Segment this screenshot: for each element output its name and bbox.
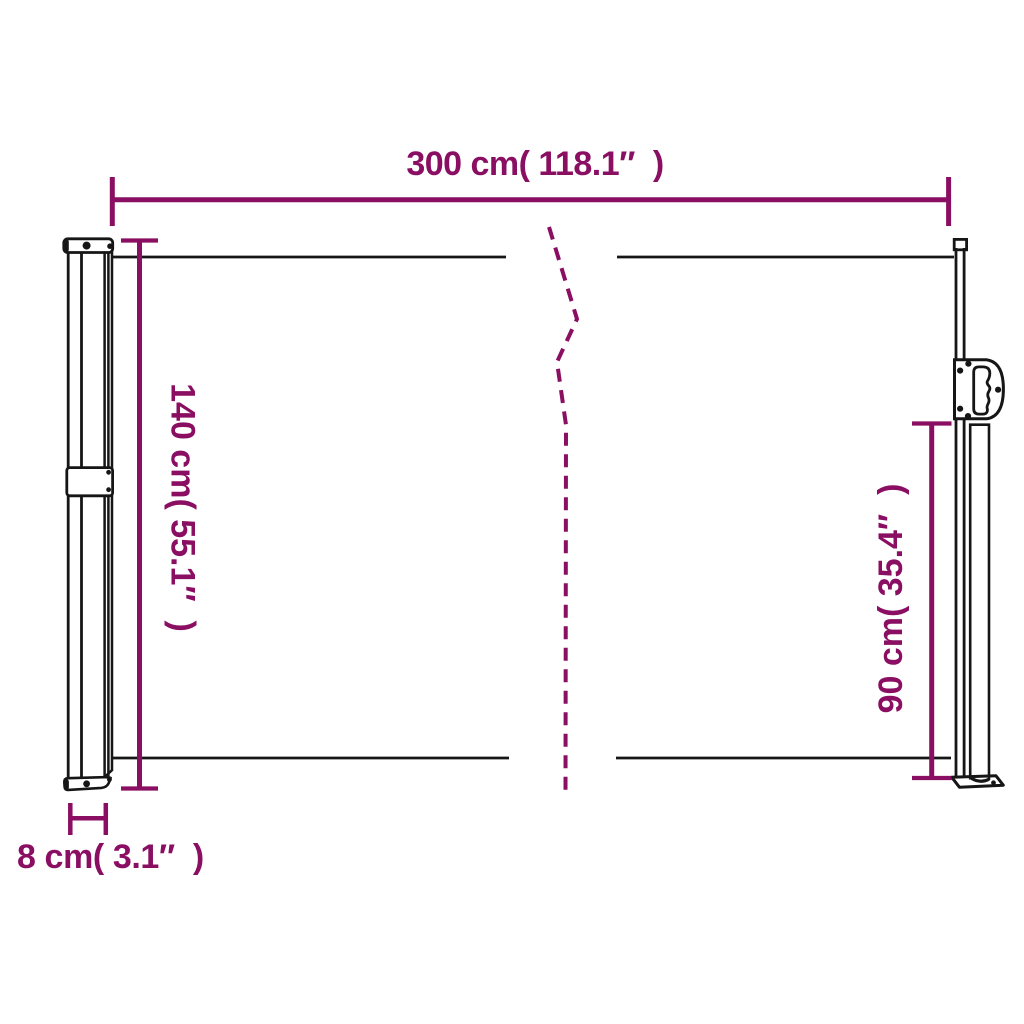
svg-text:300 cm( 118.1″ ): 300 cm( 118.1″ ) xyxy=(406,145,663,183)
svg-text:90 cm( 35.4″ ): 90 cm( 35.4″ ) xyxy=(872,484,910,714)
svg-text:8 cm( 3.1″ ): 8 cm( 3.1″ ) xyxy=(17,838,204,876)
svg-text:140 cm( 55.1″ ): 140 cm( 55.1″ ) xyxy=(164,383,202,632)
